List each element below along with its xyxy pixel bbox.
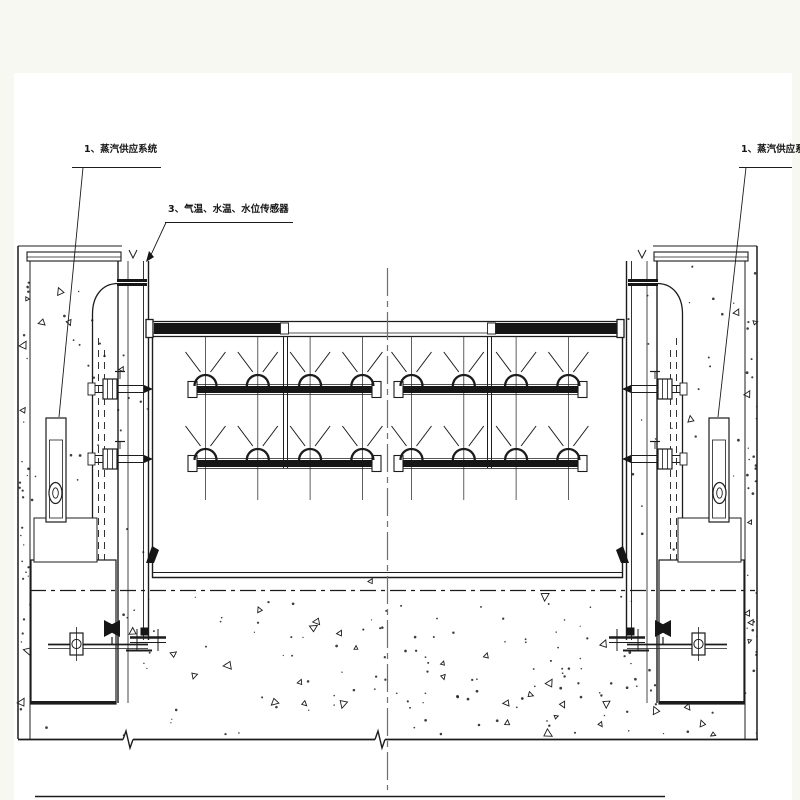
stipple-dot — [379, 627, 381, 629]
stipple-dot — [663, 733, 664, 734]
stipple-dot — [452, 631, 454, 633]
stipple-dot — [171, 719, 172, 720]
stipple-dot — [122, 613, 125, 616]
stipple-dot — [426, 670, 428, 672]
stipple-dot — [752, 669, 755, 672]
stipple-dot — [19, 487, 21, 489]
stipple-dot — [335, 645, 338, 648]
stipple-dot — [26, 358, 27, 359]
stipple-dot — [746, 371, 749, 374]
stipple-dot — [195, 597, 196, 598]
stipple-dot — [654, 684, 656, 686]
stipple-dot — [747, 321, 749, 323]
heating-pipe-bar — [197, 460, 372, 467]
stipple-dot — [291, 655, 293, 657]
stipple-dot — [581, 668, 583, 670]
stipple-dot — [384, 656, 386, 658]
stipple-dot — [712, 297, 715, 300]
stipple-dot — [425, 692, 427, 694]
stipple-dot — [632, 473, 635, 476]
stipple-dot — [496, 719, 499, 722]
stipple-dot — [422, 702, 423, 703]
stipple-dot — [564, 619, 566, 621]
beam-dark-right — [492, 323, 618, 334]
stipple-dot — [87, 365, 89, 367]
stipple-dot — [307, 680, 310, 683]
stipple-dot — [175, 709, 178, 712]
stipple-dot — [650, 689, 652, 691]
stipple-dot — [28, 575, 29, 576]
stipple-dot — [333, 695, 335, 697]
stipple-dot — [568, 667, 571, 670]
stipple-dot — [748, 448, 749, 449]
stipple-dot — [341, 671, 342, 672]
stipple-dot — [21, 561, 23, 563]
stipple-dot — [19, 481, 21, 483]
stipple-dot — [283, 655, 284, 656]
stipple-dot — [476, 690, 479, 693]
stipple-dot — [627, 318, 629, 320]
stipple-dot — [28, 282, 30, 284]
stipple-dot — [689, 302, 690, 303]
stipple-dot — [641, 532, 644, 535]
stipple-dot — [620, 596, 622, 598]
stipple-dot — [375, 675, 377, 677]
stipple-dot — [35, 476, 37, 478]
stipple-dot — [436, 618, 438, 620]
stipple-dot — [504, 641, 506, 643]
stipple-dot — [261, 696, 263, 698]
stipple-dot — [471, 679, 473, 681]
stipple-dot — [574, 732, 576, 734]
stipple-dot — [708, 357, 710, 359]
stipple-dot — [695, 435, 697, 437]
stipple-dot — [747, 487, 749, 489]
stipple-dot — [22, 632, 24, 634]
beam-dark-left — [154, 323, 280, 334]
stipple-dot — [409, 707, 411, 709]
stipple-dot — [21, 641, 22, 642]
stipple-dot — [626, 686, 629, 689]
stipple-dot — [133, 609, 135, 611]
stipple-dot — [548, 603, 550, 605]
stipple-dot — [404, 650, 407, 653]
stipple-dot — [425, 656, 427, 658]
stipple-dot — [467, 698, 470, 701]
stipple-dot — [752, 455, 755, 458]
stipple-dot — [427, 662, 429, 664]
stipple-dot — [77, 479, 79, 481]
stipple-dot — [433, 636, 435, 638]
engineering-drawing: 1、蒸汽供应系统 3、气温、水温、水位传感器 1、蒸汽供应系统 — [0, 0, 800, 800]
stipple-dot — [709, 365, 711, 367]
stipple-dot — [362, 629, 364, 631]
stipple-dot — [590, 606, 592, 608]
stipple-dot — [143, 663, 144, 664]
stipple-dot — [628, 730, 630, 732]
stipple-dot — [721, 313, 724, 316]
stipple-dot — [70, 454, 73, 457]
stipple-dot — [79, 454, 82, 457]
stipple-dot — [746, 474, 749, 477]
stipple-dot — [149, 652, 151, 654]
stipple-dot — [586, 637, 588, 639]
heating-pipe-bar — [197, 386, 372, 393]
stipple-dot — [559, 687, 562, 690]
stipple-dot — [548, 724, 550, 726]
stipple-dot — [563, 675, 565, 677]
stipple-dot — [22, 496, 24, 498]
stipple-dot — [23, 421, 24, 422]
stipple-dot — [140, 400, 142, 402]
stipple-dot — [97, 444, 99, 446]
stipple-dot — [480, 606, 482, 608]
stipple-dot — [521, 697, 524, 700]
stipple-dot — [628, 651, 631, 654]
stipple-dot — [238, 732, 240, 734]
stipple-dot — [21, 527, 23, 529]
stipple-dot — [27, 290, 29, 292]
stipple-dot — [623, 655, 625, 657]
stipple-dot — [220, 621, 222, 623]
stipple-dot — [610, 682, 613, 685]
stipple-dot — [580, 696, 583, 699]
stipple-dot — [257, 622, 259, 624]
stipple-dot — [27, 566, 29, 568]
beam-connector-right — [488, 323, 496, 334]
stipple-dot — [353, 689, 356, 692]
stipple-dot — [31, 499, 34, 502]
stipple-dot — [73, 339, 75, 341]
stipple-dot — [153, 630, 155, 632]
stipple-dot — [600, 694, 602, 696]
stipple-dot — [22, 578, 24, 580]
stipple-dot — [557, 647, 559, 649]
stipple-dot — [655, 438, 657, 440]
label-sensors: 3、气温、水温、水位传感器 — [168, 203, 289, 215]
stipple-dot — [555, 631, 556, 632]
stipple-dot — [641, 505, 643, 507]
stipple-dot — [733, 475, 734, 476]
stipple-dot — [562, 672, 564, 674]
stipple-dot — [737, 439, 740, 442]
stipple-dot — [747, 628, 748, 629]
stipple-dot — [550, 660, 552, 662]
stipple-dot — [99, 343, 101, 345]
stipple-dot — [27, 467, 30, 470]
stipple-dot — [21, 461, 22, 462]
stipple-dot — [671, 428, 672, 429]
stipple-dot — [525, 638, 527, 640]
stipple-dot — [25, 571, 27, 573]
stipple-dot — [308, 710, 309, 711]
stipple-dot — [400, 605, 402, 607]
label-steam-supply-right: 1、蒸汽供应系统 — [741, 143, 800, 155]
stipple-dot — [45, 726, 48, 729]
stipple-dot — [580, 626, 581, 627]
stipple-dot — [546, 720, 548, 722]
drawing-canvas: 1、蒸汽供应系统 3、气温、水温、水位传感器 1、蒸汽供应系统 — [0, 0, 800, 800]
stipple-dot — [78, 291, 79, 292]
stipple-dot — [23, 544, 24, 545]
stipple-dot — [20, 535, 22, 537]
stipple-dot — [533, 668, 535, 670]
stipple-dot — [20, 708, 23, 711]
stipple-dot — [687, 730, 690, 733]
stipple-dot — [636, 685, 638, 687]
stipple-dot — [333, 704, 334, 705]
stipple-dot — [120, 429, 122, 431]
stipple-dot — [580, 658, 582, 660]
heating-pipe-bar — [403, 386, 578, 393]
stipple-dot — [534, 686, 536, 688]
stipple-dot — [123, 354, 125, 356]
stipple-dot — [691, 266, 693, 268]
stipple-dot — [641, 419, 643, 421]
stipple-dot — [205, 646, 207, 648]
stipple-dot — [413, 727, 415, 729]
stipple-dot — [371, 619, 372, 620]
stipple-dot — [23, 618, 25, 620]
stipple-dot — [655, 703, 657, 705]
stipple-dot — [267, 601, 269, 603]
stipple-dot — [577, 682, 579, 684]
stipple-dot — [604, 715, 606, 717]
beam-connector-left — [281, 323, 289, 334]
stipple-dot — [599, 692, 601, 694]
stipple-dot — [224, 733, 226, 735]
stipple-dot — [63, 315, 66, 318]
beam-end-bracket-right — [617, 320, 624, 338]
stipple-dot — [27, 475, 28, 476]
stipple-dot — [170, 722, 171, 723]
heating-pipe-bar — [403, 460, 578, 467]
stipple-dot — [476, 678, 478, 680]
stipple-dot — [626, 711, 628, 713]
stipple-dot — [302, 637, 303, 638]
stipple-dot — [254, 632, 255, 633]
stipple-dot — [478, 724, 481, 727]
stipple-dot — [414, 636, 417, 639]
stipple-dot — [630, 663, 631, 664]
stipple-dot — [456, 696, 459, 699]
stipple-dot — [275, 706, 278, 709]
stipple-dot — [751, 358, 753, 360]
stipple-dot — [748, 459, 750, 461]
stipple-dot — [672, 548, 674, 550]
stipple-dot — [440, 733, 443, 736]
stipple-dot — [746, 327, 749, 330]
stipple-dot — [733, 303, 734, 304]
stipple-dot — [698, 388, 700, 390]
stipple-dot — [290, 636, 292, 638]
stipple-dot — [146, 668, 147, 669]
stipple-dot — [516, 707, 518, 709]
stipple-dot — [23, 334, 25, 336]
stipple-dot — [754, 272, 757, 275]
stipple-dot — [292, 602, 295, 605]
stipple-dot — [751, 376, 753, 378]
stipple-dot — [648, 669, 651, 672]
stipple-dot — [502, 618, 504, 620]
stipple-dot — [27, 287, 29, 289]
beam-end-bracket-left — [146, 320, 153, 338]
stipple-dot — [634, 678, 637, 681]
stipple-dot — [647, 343, 649, 345]
stipple-dot — [221, 617, 223, 619]
stipple-dot — [381, 626, 384, 629]
stipple-dot — [407, 700, 409, 702]
stipple-dot — [712, 712, 714, 714]
stipple-dot — [22, 490, 24, 492]
stipple-dot — [525, 641, 527, 643]
stipple-dot — [79, 344, 81, 346]
stipple-dot — [752, 492, 755, 495]
stipple-dot — [385, 610, 387, 612]
stipple-dot — [751, 629, 754, 632]
label-steam-supply-left: 1、蒸汽供应系统 — [84, 143, 158, 155]
stipple-dot — [396, 692, 398, 694]
stipple-dot — [424, 719, 427, 722]
stipple-dot — [561, 668, 563, 670]
stipple-dot — [747, 575, 748, 576]
stipple-dot — [374, 688, 376, 690]
stipple-dot — [415, 650, 417, 652]
stipple-dot — [384, 679, 386, 681]
